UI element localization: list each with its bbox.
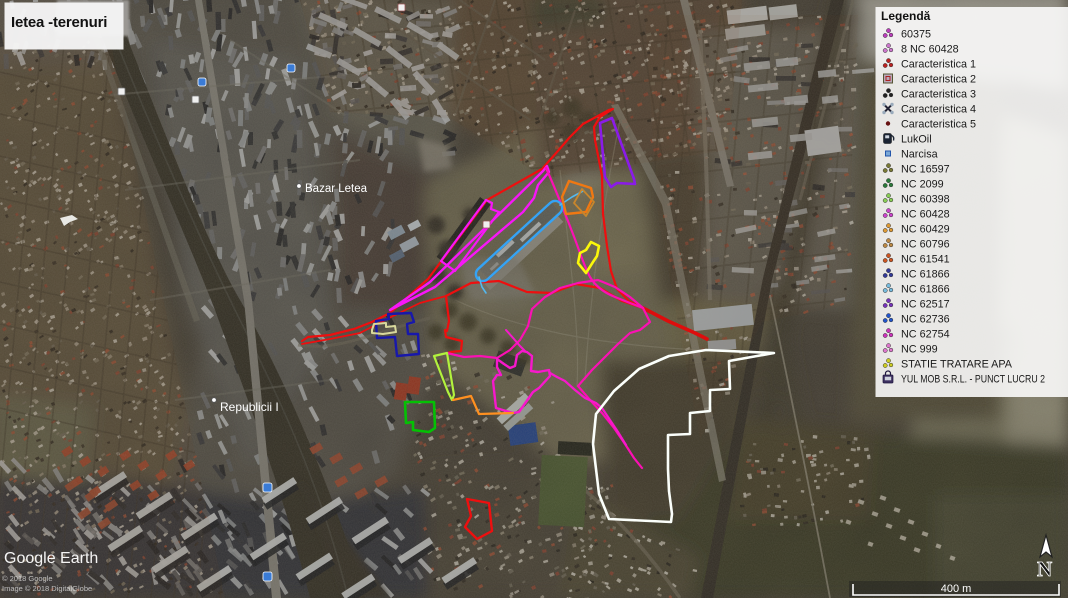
svg-text:N: N — [1037, 557, 1052, 581]
svg-text:NC 2099: NC 2099 — [901, 179, 944, 191]
svg-text:60375: 60375 — [901, 29, 931, 41]
svg-text:Google Earth: Google Earth — [4, 550, 98, 567]
svg-text:© 2018 Google: © 2018 Google — [2, 574, 53, 583]
svg-text:NC 62736: NC 62736 — [901, 314, 950, 326]
svg-text:NC 62754: NC 62754 — [901, 329, 950, 341]
svg-text:Narcisa: Narcisa — [901, 149, 938, 161]
svg-text:Caracteristica 3: Caracteristica 3 — [901, 89, 976, 101]
svg-text:NC 61866: NC 61866 — [901, 269, 950, 281]
svg-text:NC 60428: NC 60428 — [901, 209, 950, 221]
svg-text:NC 61541: NC 61541 — [901, 254, 950, 266]
svg-text:Caracteristica 4: Caracteristica 4 — [901, 104, 976, 116]
svg-text:Caracteristica 2: Caracteristica 2 — [901, 74, 976, 86]
svg-text:8 NC 60428: 8 NC 60428 — [901, 44, 959, 56]
svg-text:NC 61866: NC 61866 — [901, 284, 950, 296]
svg-text:Legendă: Legendă — [881, 9, 931, 23]
svg-text:Caracteristica 1: Caracteristica 1 — [901, 59, 976, 71]
svg-text:NC 16597: NC 16597 — [901, 164, 950, 176]
svg-text:Republicii I: Republicii I — [220, 400, 279, 414]
svg-text:NC 62517: NC 62517 — [901, 299, 950, 311]
svg-text:YUL MOB S.R.L. - PUNCT LUCRU 2: YUL MOB S.R.L. - PUNCT LUCRU 2 — [901, 374, 1045, 386]
svg-text:Caracteristica 5: Caracteristica 5 — [901, 119, 976, 131]
svg-text:NC 999: NC 999 — [901, 344, 938, 356]
svg-text:Ietea -terenuri: Ietea -terenuri — [11, 14, 107, 31]
svg-text:Image © 2018 DigitalGlobe: Image © 2018 DigitalGlobe — [2, 584, 92, 593]
svg-text:STATIE TRATARE APA: STATIE TRATARE APA — [901, 359, 1013, 371]
svg-text:NC 60429: NC 60429 — [901, 224, 950, 236]
svg-text:NC 60398: NC 60398 — [901, 194, 950, 206]
svg-text:NC 60796: NC 60796 — [901, 239, 950, 251]
svg-text:Bazar Letea: Bazar Letea — [305, 183, 368, 195]
svg-text:400 m: 400 m — [941, 583, 972, 595]
svg-text:LukOil: LukOil — [901, 134, 932, 146]
